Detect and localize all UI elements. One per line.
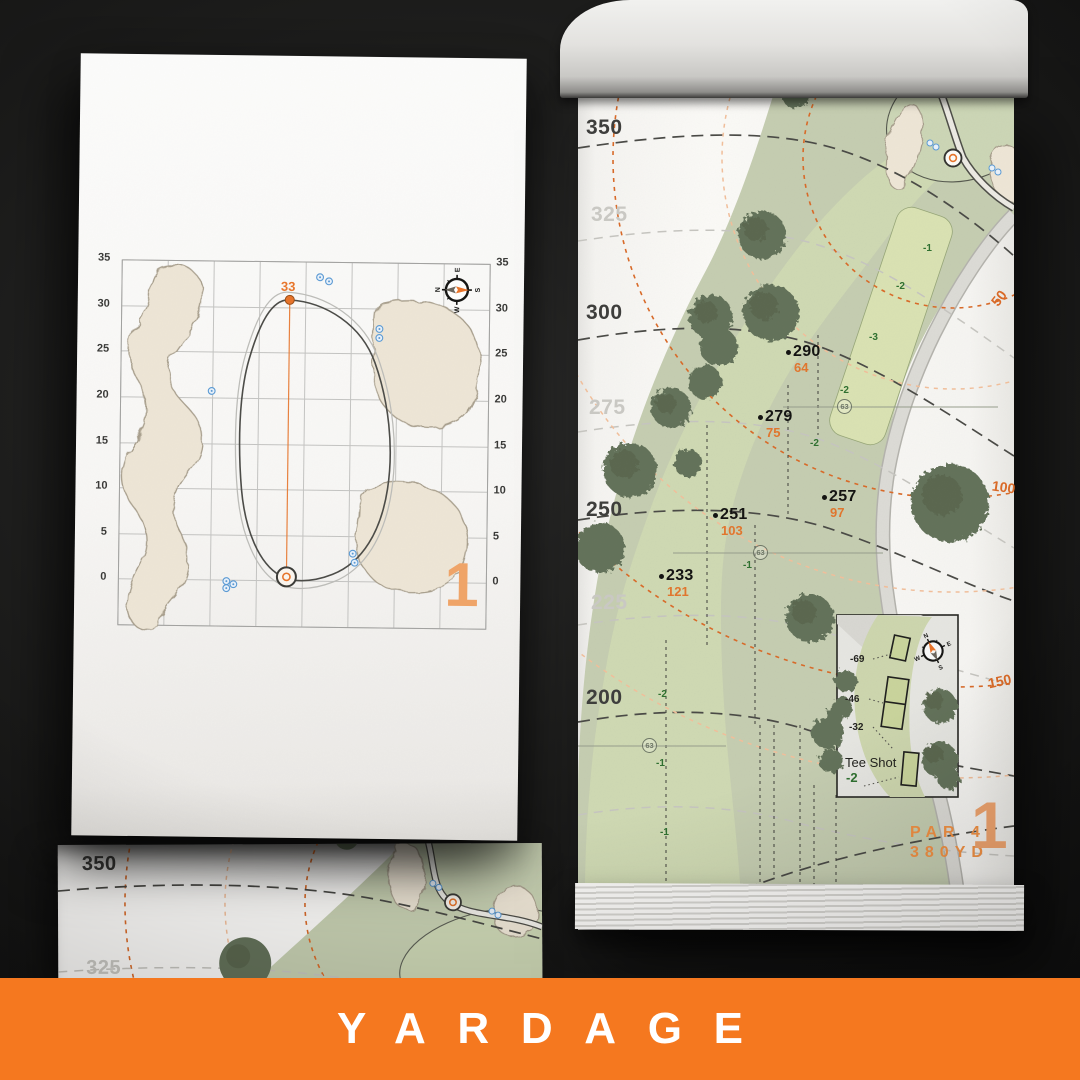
svg-text:S: S <box>938 664 945 672</box>
slope-label: -1 <box>923 243 932 254</box>
yardage-marker: 233121 <box>659 567 694 599</box>
axis-value-right: 25 <box>495 348 521 360</box>
arc-distance-label: 100 <box>991 477 1016 496</box>
tee-distance-label: -32 <box>849 722 863 733</box>
contour-label: 200 <box>586 686 623 710</box>
marker-dot <box>822 495 827 500</box>
banner-title: YARDAGE <box>305 1004 774 1054</box>
axis-value-right: 5 <box>493 530 519 542</box>
remaining-distance: 121 <box>667 584 694 599</box>
svg-text:E: E <box>946 640 953 648</box>
left-page-green-map: 35302520151050 35302520151050 33 <box>71 53 527 840</box>
contour-label: 350 <box>82 853 117 876</box>
page-roll-edge <box>560 0 1028 98</box>
carry-distance: 251 <box>720 506 748 524</box>
slope-label: -2 <box>810 438 819 449</box>
contour-label: 300 <box>586 301 623 325</box>
contour-label: 325 <box>591 203 628 227</box>
hole-number-right: 1 <box>971 792 1008 858</box>
contour-label: 325 <box>86 957 121 980</box>
carry-distance: 279 <box>765 408 793 426</box>
axis-value-left: 15 <box>82 434 108 446</box>
compass-rose-inset: N E S W <box>912 630 954 672</box>
axis-value-left: 35 <box>84 251 110 263</box>
contour-label: 250 <box>586 498 623 522</box>
arc-distance-label: 50 <box>988 287 1010 309</box>
slope-label: -1 <box>660 827 669 838</box>
axis-value-left: 5 <box>81 525 107 537</box>
svg-text:W: W <box>913 655 921 664</box>
remaining-distance: 64 <box>794 360 821 375</box>
hole-number-left: 1 <box>444 555 479 617</box>
slope-label: -2 <box>840 385 849 396</box>
compass-rose: N E S W <box>433 266 482 315</box>
carry-distance: 233 <box>666 567 694 585</box>
svg-text:N: N <box>435 287 442 292</box>
axis-value-left: 20 <box>83 388 109 400</box>
tee-shot-slope: -2 <box>846 770 858 785</box>
slope-label: -2 <box>658 689 667 700</box>
tee-distance-label: -46 <box>845 694 859 705</box>
axis-value-left: 10 <box>81 479 107 491</box>
tee-shot-title: Tee Shot <box>845 755 896 770</box>
marker-dot <box>786 350 791 355</box>
axis-value-right: 20 <box>495 393 521 405</box>
remaining-distance: 97 <box>830 505 857 520</box>
slope-label: -1 <box>656 758 665 769</box>
slope-label: -3 <box>869 332 878 343</box>
carry-distance: 290 <box>793 343 821 361</box>
yardage-marker: 251103 <box>713 506 748 538</box>
yardage-book-scene: 35302520151050 35302520151050 33 <box>0 0 1080 1080</box>
sprinkler-distance-badge: 63 <box>642 738 657 753</box>
axis-value-left: 30 <box>84 297 110 309</box>
carry-distance: 257 <box>829 488 857 506</box>
svg-text:N: N <box>923 632 930 640</box>
contour-label: 275 <box>589 396 626 420</box>
right-page-hole-map: 350325300275250225200 50100150 290642797… <box>578 96 1014 930</box>
slope-label: -1 <box>743 560 752 571</box>
contour-label: 225 <box>591 591 628 615</box>
arc-distance-label: 150 <box>987 671 1013 692</box>
pin-distance-label: 33 <box>281 279 296 294</box>
yardage-marker: 25797 <box>822 488 857 520</box>
remaining-distance: 103 <box>721 523 748 538</box>
axis-value-left: 0 <box>80 571 106 583</box>
sprinkler-distance-badge: 63 <box>837 399 852 414</box>
svg-text:W: W <box>454 306 461 313</box>
tee-distance-label: -69 <box>850 654 864 665</box>
bottom-stacked-page: 350325 <box>58 843 543 981</box>
marker-dot <box>713 513 718 518</box>
marker-dot <box>659 574 664 579</box>
yardage-banner: YARDAGE <box>0 978 1080 1080</box>
y-axis-right: 35302520151050 <box>81 53 527 58</box>
y-axis-left: 35302520151050 <box>81 53 527 58</box>
axis-value-right: 15 <box>494 439 520 451</box>
svg-text:S: S <box>475 287 481 292</box>
slope-label: -2 <box>896 281 905 292</box>
contour-label: 350 <box>586 116 623 140</box>
axis-value-right: 0 <box>492 576 518 588</box>
bottom-page-labels: 350325 <box>58 843 543 981</box>
axis-value-left: 25 <box>83 343 109 355</box>
page-stack-edge <box>575 883 1024 931</box>
sprinkler-distance-badge: 63 <box>753 545 768 560</box>
remaining-distance: 75 <box>766 425 793 440</box>
axis-value-right: 10 <box>493 485 519 497</box>
axis-value-right: 30 <box>496 302 522 314</box>
yardage-marker: 27975 <box>758 408 793 440</box>
yardage-marker: 29064 <box>786 343 821 375</box>
svg-text:E: E <box>455 267 462 272</box>
marker-dot <box>758 415 763 420</box>
axis-value-right: 35 <box>496 256 522 268</box>
